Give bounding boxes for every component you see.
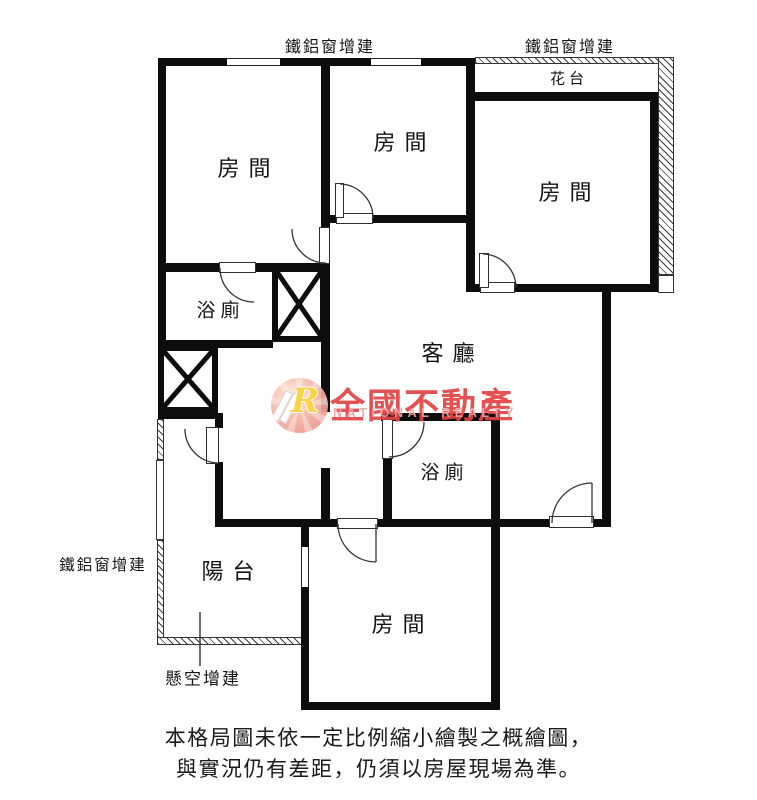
- label-addition-left: 鐵鋁窗增建: [59, 553, 147, 575]
- plan-lines-layer: [0, 0, 757, 800]
- shaft-cross-marks: [161, 269, 323, 410]
- label-addition-top-left: 鐵鋁窗增建: [285, 33, 375, 57]
- label-room-top-left: 房間: [208, 151, 279, 183]
- door-arc-room-bottom: [338, 524, 376, 562]
- door-arc-room-top-middle: [340, 184, 373, 218]
- label-flower-bed: 花台: [546, 68, 588, 89]
- door-arc-entrance: [552, 483, 592, 523]
- label-addition-top-right: 鐵鋁窗增建: [525, 33, 615, 57]
- label-bathroom-lower: 浴廁: [415, 458, 468, 485]
- label-room-top-middle: 房間: [364, 125, 435, 157]
- label-room-bottom: 房間: [362, 607, 433, 639]
- label-suspended-addition: 懸空增建: [165, 665, 241, 690]
- floor-plan: 鐵鋁窗增建 鐵鋁窗增建 花台 房間 房間 房間 浴廁 客廳 浴廁 陽台 房間 鐵…: [0, 0, 757, 800]
- door-arc-balcony: [185, 429, 219, 463]
- label-bathroom-upper: 浴廁: [191, 296, 244, 323]
- label-room-top-right: 房間: [529, 175, 600, 207]
- label-balcony: 陽台: [192, 554, 263, 586]
- door-arc-room-top-right: [483, 254, 516, 288]
- door-swing-arcs: [185, 184, 592, 562]
- disclaimer-text: 本格局圖未依一定比例縮小繪製之概繪圖， 與實況仍有差距，仍須以房屋現場為準。: [0, 723, 757, 785]
- disclaimer-line1: 本格局圖未依一定比例縮小繪製之概繪圖，: [0, 723, 757, 754]
- door-arc-room-top-left: [292, 229, 326, 263]
- disclaimer-line2: 與實況仍有差距，仍須以房屋現場為準。: [0, 754, 757, 785]
- label-living-room: 客廳: [412, 336, 483, 368]
- door-arc-bathroom-lower: [389, 422, 424, 457]
